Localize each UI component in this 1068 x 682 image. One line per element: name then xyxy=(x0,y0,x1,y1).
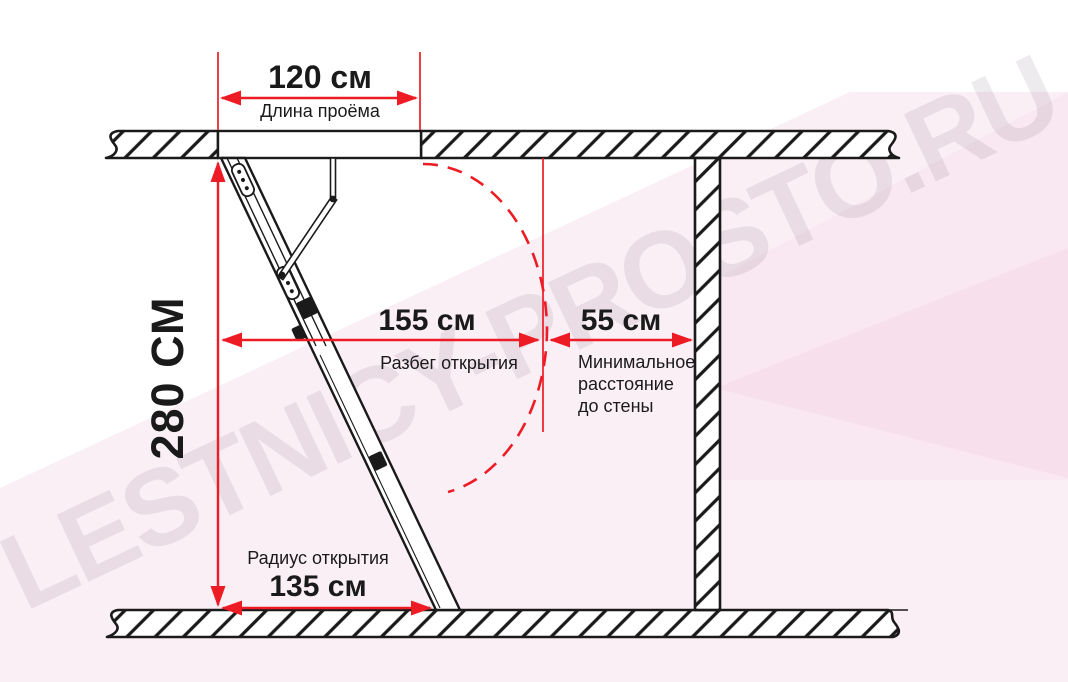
ceiling-opening-box xyxy=(218,131,421,158)
arm-joint xyxy=(279,272,286,279)
dim-value-ceiling-height: 280 СМ xyxy=(142,297,194,460)
dim-value-opening-length: 120 см xyxy=(268,59,372,96)
ladder-strip xyxy=(221,158,460,610)
dim-value-opening-radius: 135 см xyxy=(269,570,366,604)
dim-label-opening-length: Длина проёма xyxy=(260,101,380,122)
dim-label-opening-radius: Радиус открытия xyxy=(247,548,389,569)
arm-joint xyxy=(330,196,337,203)
ceiling-slab-right xyxy=(421,131,899,158)
floor-slab xyxy=(107,610,899,637)
diagram-canvas: LESTNICY-PROSTO.RU xyxy=(0,0,1068,682)
ceiling-slab-left xyxy=(106,131,218,158)
dim-value-opening-run: 155 см xyxy=(378,304,475,338)
folding-ladder xyxy=(221,158,460,610)
dim-label-opening-run: Разбег открытия xyxy=(380,353,518,374)
wall-section xyxy=(695,158,720,610)
dim-label-wall-distance: Минимальное расстояние до стены xyxy=(578,351,695,417)
dim-value-wall-distance: 55 см xyxy=(581,304,662,338)
